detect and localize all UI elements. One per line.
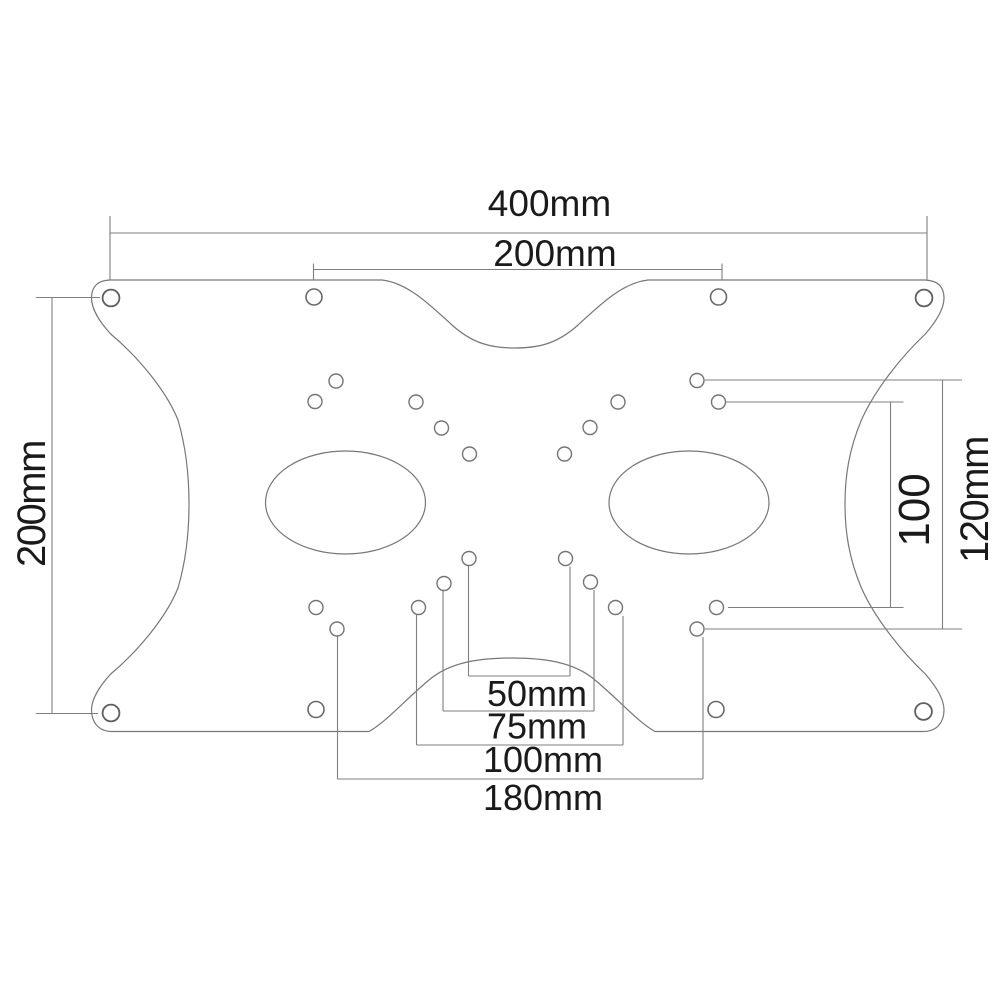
svg-text:120mm: 120mm [953, 437, 997, 563]
svg-text:400mm: 400mm [488, 183, 611, 224]
svg-text:180mm: 180mm [483, 777, 603, 818]
svg-text:200mm: 200mm [10, 441, 54, 567]
svg-text:100mm: 100mm [483, 739, 603, 780]
svg-text:100: 100 [890, 473, 939, 546]
svg-text:200mm: 200mm [493, 233, 616, 274]
